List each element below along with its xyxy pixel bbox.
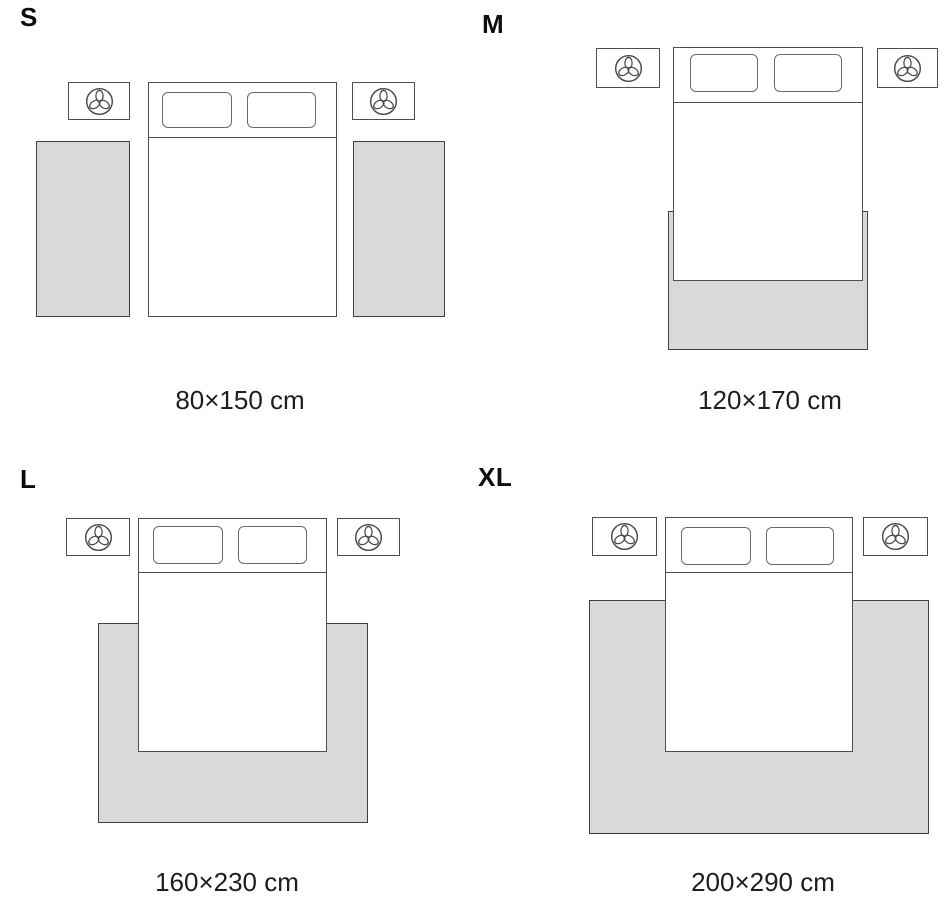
nightstand-right xyxy=(877,48,938,88)
plant-top-view-icon xyxy=(608,520,641,553)
rug-dimensions-caption: 200×290 cm xyxy=(613,867,913,897)
nightstand-left xyxy=(68,82,130,120)
rug-dimensions-caption: 80×150 cm xyxy=(90,385,390,415)
panel-size-xl: XL xyxy=(475,450,950,900)
bed xyxy=(148,82,337,317)
size-letter-xl: XL xyxy=(478,464,512,490)
size-letter-l: L xyxy=(20,466,36,492)
nightstand-right xyxy=(863,517,928,556)
plant-top-view-icon xyxy=(82,521,115,554)
pillow-left xyxy=(690,54,758,92)
panel-size-m: M xyxy=(475,0,950,450)
pillow-left xyxy=(162,92,232,128)
pillow-left xyxy=(681,527,751,565)
nightstand-left xyxy=(592,517,657,556)
plant-top-view-icon xyxy=(352,521,385,554)
bed-headboard xyxy=(666,518,852,573)
plant-top-view-icon xyxy=(612,52,645,85)
bed xyxy=(665,517,853,752)
pillow-right xyxy=(247,92,316,128)
pillow-left xyxy=(153,526,223,564)
rug-size-guide: S xyxy=(0,0,950,900)
plant-top-view-icon xyxy=(83,85,116,118)
size-letter-s: S xyxy=(20,4,38,30)
rug-dimensions-caption: 120×170 cm xyxy=(620,385,920,415)
nightstand-right xyxy=(337,518,400,556)
bed-headboard xyxy=(674,48,862,103)
pillow-right xyxy=(766,527,834,565)
size-letter-m: M xyxy=(482,11,504,37)
pillow-right xyxy=(774,54,842,92)
nightstand-left xyxy=(66,518,130,556)
bed xyxy=(138,518,327,752)
bed-headboard xyxy=(149,83,336,138)
pillow-right xyxy=(238,526,307,564)
plant-top-view-icon xyxy=(879,520,912,553)
bed xyxy=(673,47,863,281)
rug-left xyxy=(36,141,130,317)
panel-size-l: L xyxy=(0,450,475,900)
panel-size-s: S xyxy=(0,0,475,450)
nightstand-right xyxy=(352,82,415,120)
plant-top-view-icon xyxy=(367,85,400,118)
nightstand-left xyxy=(596,48,660,88)
bed-headboard xyxy=(139,519,326,573)
plant-top-view-icon xyxy=(891,52,924,85)
rug-dimensions-caption: 160×230 cm xyxy=(77,867,377,897)
rug-right xyxy=(353,141,445,317)
